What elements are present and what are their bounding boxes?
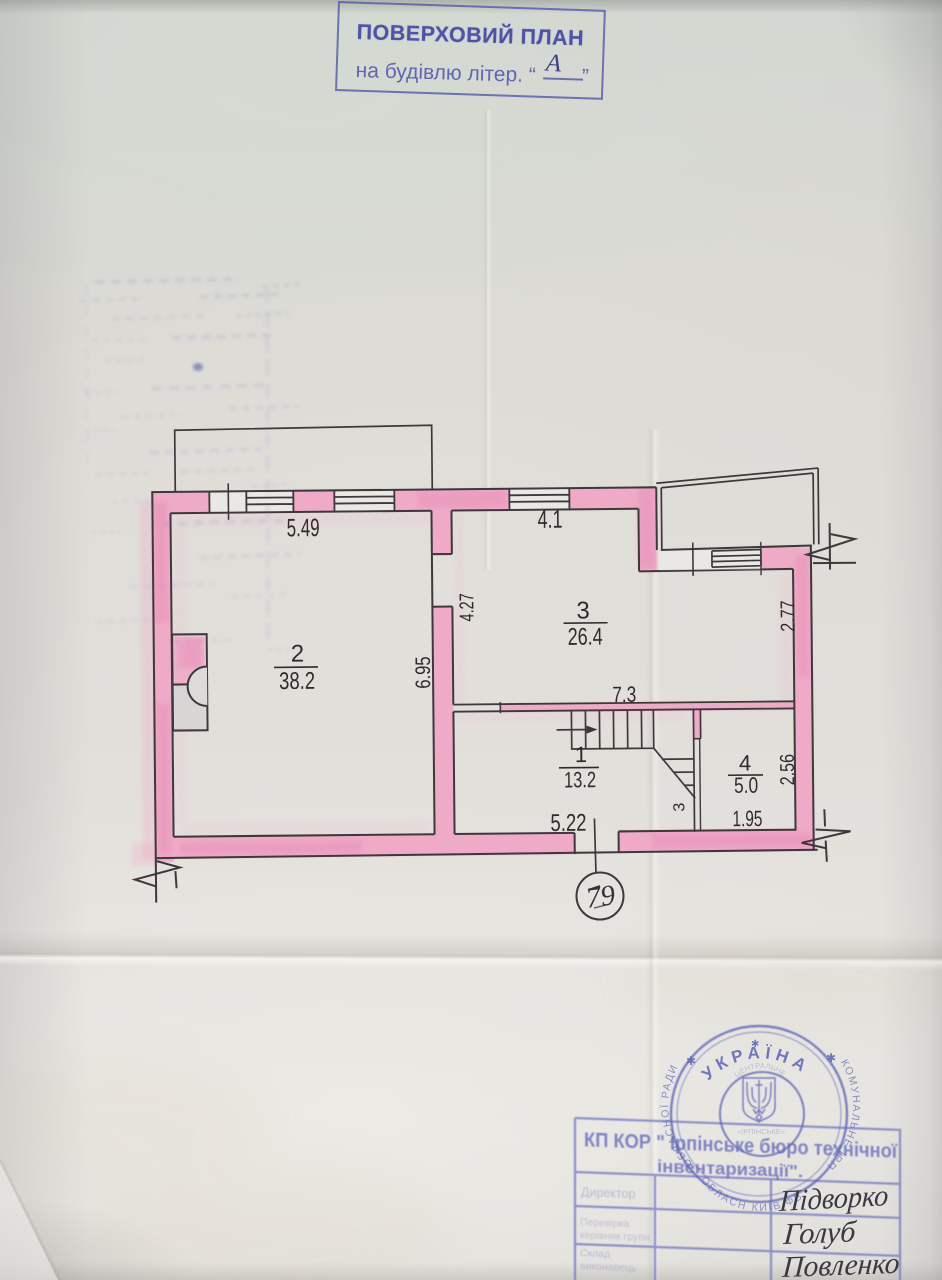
svg-text:ОБЛАСНОЇ РАДИ ІНВЕНТАРИЗАЦІЇ: ОБЛАСНОЇ РАДИ ІНВЕНТАРИЗАЦІЇ <box>0 0 695 1170</box>
svg-text:Повленко: Повленко <box>781 1246 901 1280</box>
svg-text:«ІРПІНСЬКЕ»: «ІРПІНСЬКЕ» <box>737 1127 785 1136</box>
svg-text:керівник групи: керівник групи <box>580 1229 650 1244</box>
svg-text:Підворко: Підворко <box>778 1178 890 1218</box>
svg-text:✱: ✱ <box>826 1051 836 1065</box>
svg-text:✱: ✱ <box>751 1039 759 1050</box>
svg-text:Голуб: Голуб <box>781 1214 857 1251</box>
svg-text:Перевірка: Перевірка <box>580 1216 630 1230</box>
svg-text:Директор: Директор <box>581 1185 635 1201</box>
svg-text:виконавець: виконавець <box>580 1260 637 1274</box>
svg-text:Склад: Склад <box>580 1247 610 1260</box>
svg-text:✱: ✱ <box>686 1054 696 1068</box>
